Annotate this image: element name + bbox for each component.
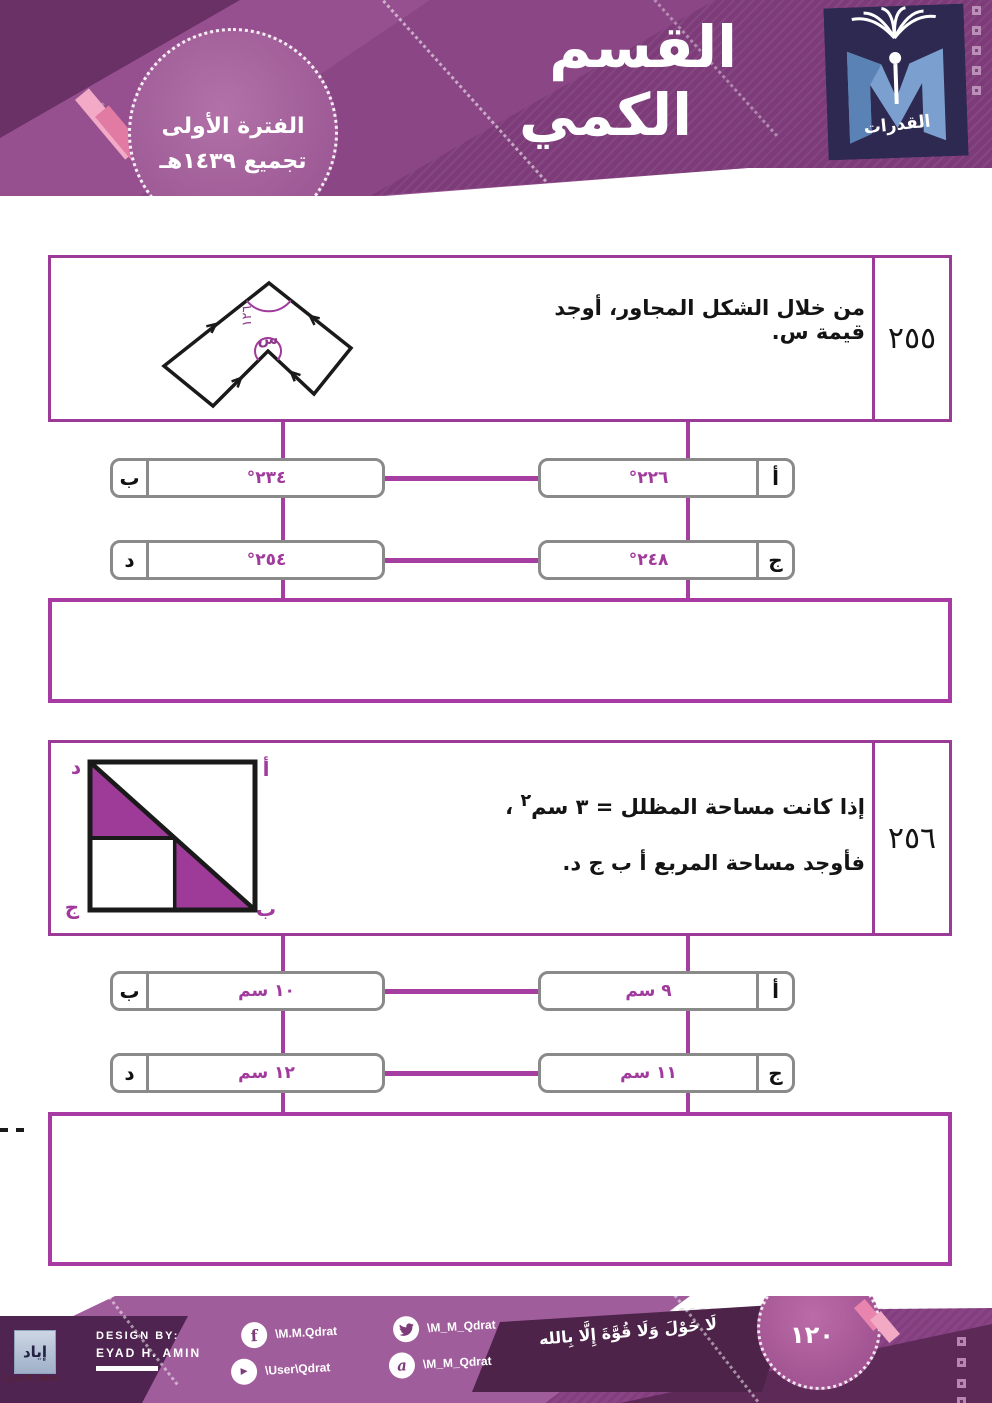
- option-letter: ب: [113, 974, 149, 1008]
- signature-text: إياد: [23, 1343, 47, 1361]
- period-badge: الفترة الأولى تجميع ١٤٣٩هـ: [128, 28, 338, 238]
- section-title-line1: القسم: [549, 18, 737, 76]
- page-header: الفترة الأولى تجميع ١٤٣٩هـ القسم الكمي: [0, 0, 992, 200]
- unknown-angle-label: س: [258, 330, 279, 348]
- deco-square: [972, 6, 981, 15]
- signature-script: Eyad H. Amin: [2, 1374, 58, 1383]
- deco-square: [957, 1397, 966, 1403]
- question-255-number: ٢٥٥: [872, 258, 949, 419]
- designer-name: EYAD H. AMIN: [96, 1346, 201, 1360]
- option-256-d: د ١٢ سم: [110, 1053, 385, 1093]
- page-number: ١٢٠: [790, 1321, 834, 1349]
- option-value: ٢٣٤°: [151, 461, 382, 495]
- option-value: ٩ سم: [541, 974, 756, 1008]
- text-main: إذا كانت مساحة المظلل = ٣ سم: [531, 795, 865, 819]
- connector: [686, 498, 690, 540]
- option-letter: ج: [756, 1056, 792, 1090]
- option-255-d: د ٢٥٤°: [110, 540, 385, 580]
- option-letter: أ: [756, 974, 792, 1008]
- deco-square: [972, 26, 981, 35]
- option-letter: د: [113, 1056, 149, 1090]
- margin-dash-mark: [0, 1128, 24, 1132]
- badge-line1: الفترة الأولى: [131, 109, 335, 144]
- parallel-arrow-marks: [206, 316, 319, 387]
- qudrat-logo-graphic: القدرات: [823, 4, 968, 161]
- deco-square: [957, 1337, 966, 1346]
- option-256-b: ب ١٠ سم: [110, 971, 385, 1011]
- qudrat-logo: القدرات: [823, 4, 968, 161]
- connector: [686, 1093, 690, 1112]
- connector: [385, 1071, 540, 1076]
- worksheet-page: الفترة الأولى تجميع ١٤٣٩هـ القسم الكمي: [0, 0, 992, 1403]
- answer-workspace-255: [48, 598, 952, 703]
- ask-icon: a: [388, 1352, 415, 1379]
- option-value: ٢٥٤°: [151, 543, 382, 577]
- connector: [281, 1093, 285, 1112]
- option-value: ١١ سم: [541, 1056, 756, 1090]
- option-256-c: ج ١١ سم: [538, 1053, 795, 1093]
- connector: [385, 476, 540, 481]
- option-letter: أ: [756, 461, 792, 495]
- twitter-handle: \M_M_Qdrat: [427, 1318, 496, 1336]
- corner-a-label: أ: [263, 755, 270, 781]
- question-256-text-line2: فأوجد مساحة المربع أ ب ج د.: [505, 851, 865, 875]
- text-tail: ،: [505, 795, 513, 819]
- question-256-text-line1: إذا كانت مساحة المظلل = ٣ سم٢ ،: [505, 791, 865, 819]
- facebook-handle: \M.M.Qdrat: [275, 1324, 338, 1341]
- question-255-box: ٢٥٥ من خلال الشكل المجاور، أوجد قيمة س. …: [48, 255, 952, 422]
- question-255-figure: ١٢٦ س: [151, 266, 361, 416]
- page-footer: ١٢٠ إياد Eyad H. Amin DESIGN BY: EYAD H.…: [0, 1296, 992, 1403]
- deco-square: [972, 86, 981, 95]
- option-value: ١٠ سم: [151, 974, 382, 1008]
- connector: [385, 558, 540, 563]
- connector: [281, 498, 285, 540]
- corner-d-label: د: [71, 755, 81, 779]
- social-links: f \M.M.Qdrat \M_M_Qdrat ▶ \User\Qdrat a …: [220, 1300, 524, 1396]
- answer-workspace-256: [48, 1112, 952, 1266]
- question-255-text: من خلال الشكل المجاور، أوجد قيمة س.: [505, 296, 865, 344]
- connector: [385, 989, 540, 994]
- deco-square: [972, 46, 981, 55]
- superscript: ٢: [520, 791, 531, 811]
- connector: [686, 422, 690, 458]
- question-256-number: ٢٥٦: [872, 743, 949, 933]
- corner-b-label: ب: [256, 897, 276, 920]
- twitter-icon: [392, 1316, 419, 1343]
- period-badge-text: الفترة الأولى تجميع ١٤٣٩هـ: [131, 109, 335, 179]
- option-value: ٢٢٦°: [541, 461, 756, 495]
- deco-square: [957, 1358, 966, 1367]
- designer-signature-badge: إياد: [14, 1330, 56, 1374]
- option-256-a: أ ٩ سم: [538, 971, 795, 1011]
- connector: [281, 1011, 285, 1053]
- connector: [281, 422, 285, 458]
- facebook-icon: f: [241, 1321, 268, 1348]
- angle-value-label: ١٢٦: [240, 306, 255, 327]
- section-title-line2: الكمي: [519, 86, 692, 144]
- option-letter: د: [113, 543, 149, 577]
- connector: [281, 936, 285, 971]
- connector: [686, 580, 690, 598]
- deco-square: [957, 1379, 966, 1388]
- deco-square: [972, 66, 981, 75]
- corner-j-label: ج: [65, 895, 80, 919]
- connector: [686, 1011, 690, 1053]
- connector: [686, 936, 690, 971]
- option-letter: ب: [113, 461, 149, 495]
- youtube-handle: \User\Qdrat: [265, 1360, 331, 1377]
- designer-underline: [96, 1366, 158, 1371]
- badge-line2: تجميع ١٤٣٩هـ: [131, 144, 335, 179]
- option-value: ١٢ سم: [151, 1056, 382, 1090]
- design-by-label: DESIGN BY:: [96, 1330, 179, 1342]
- option-255-b: ب ٢٣٤°: [110, 458, 385, 498]
- youtube-icon: ▶: [230, 1358, 257, 1385]
- option-letter: ج: [756, 543, 792, 577]
- option-255-c: ج ٢٤٨°: [538, 540, 795, 580]
- option-value: ٢٤٨°: [541, 543, 756, 577]
- question-256-box: ٢٥٦ إذا كانت مساحة المظلل = ٣ سم٢ ، فأوج…: [48, 740, 952, 936]
- connector: [281, 580, 285, 598]
- option-255-a: أ ٢٢٦°: [538, 458, 795, 498]
- question-256-figure: د أ ج ب: [52, 748, 282, 920]
- ask-handle: \M_M_Qdrat: [423, 1354, 492, 1372]
